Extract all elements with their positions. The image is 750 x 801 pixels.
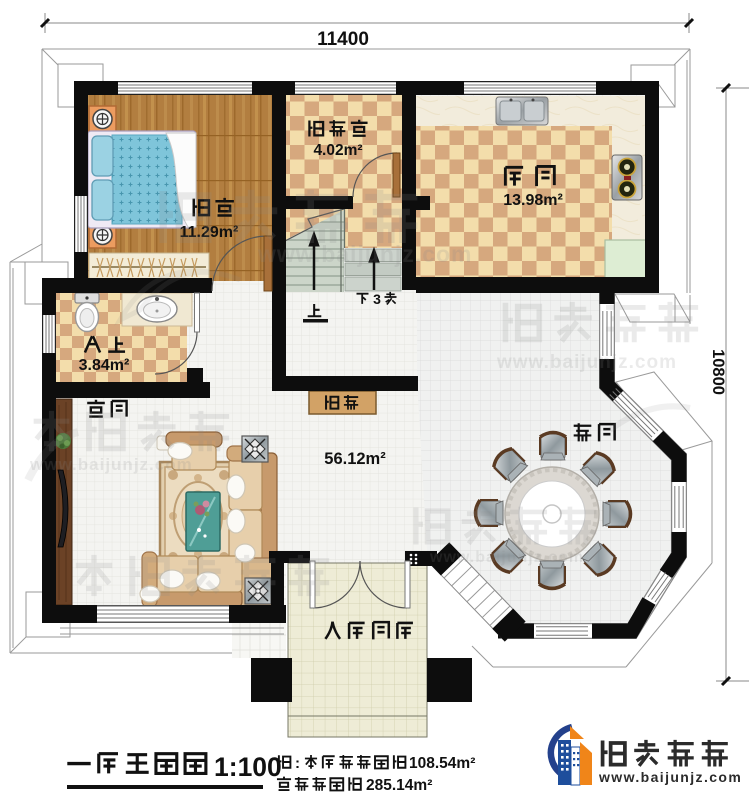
svg-text:www.baijunjz.com: www.baijunjz.com xyxy=(257,241,473,267)
svg-text:56.12m²: 56.12m² xyxy=(324,450,386,468)
svg-text::: : xyxy=(295,755,300,772)
svg-text:3: 3 xyxy=(373,291,381,307)
svg-text:1:100: 1:100 xyxy=(214,752,282,782)
svg-text:285.14m²: 285.14m² xyxy=(366,777,432,794)
svg-text:10800: 10800 xyxy=(709,349,727,395)
svg-text:www.baijunjz.com: www.baijunjz.com xyxy=(29,455,193,474)
svg-text:www.baijunjz.com: www.baijunjz.com xyxy=(496,352,677,373)
svg-text:108.54m²: 108.54m² xyxy=(409,755,475,772)
svg-text:11400: 11400 xyxy=(317,29,369,50)
svg-text:4.02m²: 4.02m² xyxy=(313,142,362,159)
svg-text:3.84m²: 3.84m² xyxy=(79,357,130,374)
svg-text:www.baijunjz.com: www.baijunjz.com xyxy=(429,549,584,566)
svg-text:www.baijunjz.com: www.baijunjz.com xyxy=(598,769,742,785)
svg-text:13.98m²: 13.98m² xyxy=(503,192,563,209)
